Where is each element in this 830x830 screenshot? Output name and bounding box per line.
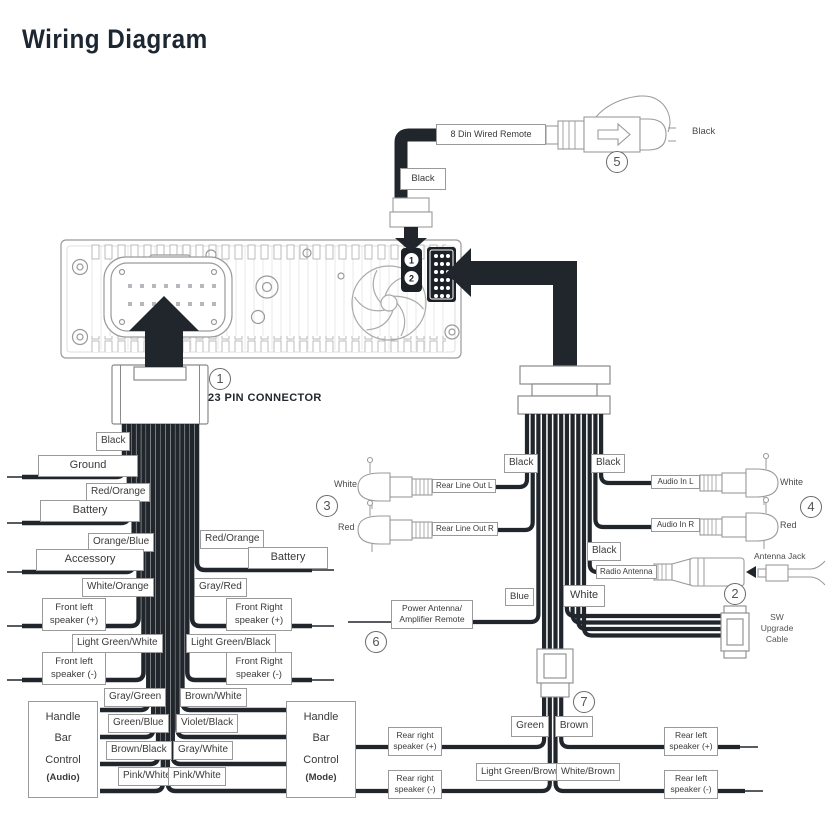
target-battery-left: Battery	[40, 500, 140, 522]
label-antenna-jack: Antenna Jack	[754, 551, 806, 561]
arrow-insert-icon	[746, 566, 756, 578]
callout-7: 7	[573, 691, 595, 713]
wire-color-audio-1: Gray/Green	[104, 688, 166, 707]
wire-color-front-left-neg: Light Green/White	[72, 634, 163, 653]
label-audio-in-l: Audio In L	[651, 475, 700, 489]
inline-connector-top	[390, 198, 432, 227]
plug-color-rlo-r: Red	[338, 522, 355, 532]
callout-5: 5	[606, 151, 628, 173]
secondary-plug	[518, 366, 610, 414]
wire-color-white: White	[563, 585, 605, 607]
remote-wire-color-label: Black	[400, 168, 446, 190]
sw-upgrade-connector	[721, 606, 749, 658]
callout-1: 1	[209, 368, 231, 390]
wire-color-black-out: Black	[504, 454, 538, 473]
wire-color-rear-left-pos: Brown	[555, 716, 593, 737]
din-port-1-2: 1 2	[401, 248, 422, 292]
handle-audio-title: Handle Bar Control	[39, 707, 87, 771]
target-battery-right: Battery	[248, 547, 328, 569]
handle-bar-control-audio: Handle Bar Control (Audio)	[28, 701, 98, 798]
callout-2: 2	[724, 583, 746, 605]
din-port-number-1: 1	[409, 256, 414, 266]
wire-color-rear-left-neg: White/Brown	[556, 763, 620, 781]
wire-color-mode-3: Gray/White	[173, 741, 233, 760]
wire-color-audio-3: Brown/Black	[106, 741, 172, 760]
wire-color-audio-2: Green/Blue	[108, 714, 169, 733]
label-radio-antenna: Radio Antenna	[596, 565, 657, 579]
target-rear-right-pos: Rear right speaker (+)	[388, 727, 442, 756]
handle-mode-sub: (Mode)	[287, 772, 355, 783]
callout-6: 6	[365, 631, 387, 653]
23pin-plug	[112, 365, 208, 424]
label-power-antenna: Power Antenna/ Amplifier Remote	[391, 600, 473, 629]
label-audio-in-r: Audio In R	[651, 518, 700, 532]
wire-color-blue: Blue	[505, 588, 534, 606]
wire-color-front-right-pos: Gray/Red	[194, 578, 247, 597]
label-sw-upgrade-cable: SW Upgrade Cable	[754, 612, 800, 645]
wire-color-battery-left: Red/Orange	[86, 483, 150, 502]
rca-audio-in	[700, 454, 778, 550]
wire-color-rear-right-pos: Green	[511, 716, 549, 737]
remote-cable-label: 8 Din Wired Remote	[436, 124, 546, 145]
plug-color-ain-l: White	[780, 477, 803, 487]
target-accessory: Accessory	[36, 549, 144, 571]
wire-color-mode-1: Brown/White	[180, 688, 247, 707]
din-port-number-2: 2	[409, 274, 414, 284]
target-rear-left-pos: Rear left speaker (+)	[664, 727, 718, 756]
wire-color-front-left-pos: White/Orange	[82, 578, 154, 597]
label-rear-line-out-r: Rear Line Out R	[432, 522, 498, 536]
antenna-socket	[654, 558, 744, 586]
wire-color-front-right-neg: Light Green/Black	[186, 634, 276, 653]
callout-3: 3	[316, 495, 338, 517]
plug-color-rlo-l: White	[334, 479, 357, 489]
antenna-plug	[758, 561, 825, 585]
handle-mode-title: Handle Bar Control	[297, 707, 345, 771]
wire-color-ground: Black	[96, 432, 130, 451]
label-rear-line-out-l: Rear Line Out L	[432, 479, 496, 493]
din-plug-drawing	[546, 96, 676, 152]
handle-audio-sub: (Audio)	[29, 772, 97, 783]
target-ground: Ground	[38, 455, 138, 477]
rca-rear-line-out	[358, 458, 432, 553]
wire-color-mode-2: Violet/Black	[176, 714, 238, 733]
wire-color-mode-4: Pink/White	[168, 767, 226, 786]
wire-color-black-antenna: Black	[587, 542, 621, 561]
inline-connector-7	[537, 649, 573, 697]
pin-connector-label: 23 PIN CONNECTOR	[208, 392, 322, 404]
target-front-left-pos: Front left speaker (+)	[42, 598, 106, 631]
handle-bar-control-mode: Handle Bar Control (Mode)	[286, 701, 356, 798]
arrow-left-elbow-icon	[446, 248, 577, 366]
plug-color-ain-r: Red	[780, 520, 797, 530]
target-rear-right-neg: Rear right speaker (-)	[388, 770, 442, 799]
target-front-left-neg: Front left speaker (-)	[42, 652, 106, 685]
callout-4: 4	[800, 496, 822, 518]
wire-color-rear-right-neg: Light Green/Brown	[476, 763, 565, 781]
target-front-right-pos: Front Right speaker (+)	[226, 598, 292, 631]
wire-color-black-in: Black	[591, 454, 625, 473]
wire-color-battery-right: Red/Orange	[200, 530, 264, 549]
head-unit-rear-panel: 1 2	[61, 240, 461, 358]
target-rear-left-neg: Rear left speaker (-)	[664, 770, 718, 799]
remote-plug-color-label: Black	[692, 126, 715, 137]
target-front-right-neg: Front Right speaker (-)	[226, 652, 292, 685]
wiring-diagram-page: Wiring Diagram	[0, 0, 830, 830]
